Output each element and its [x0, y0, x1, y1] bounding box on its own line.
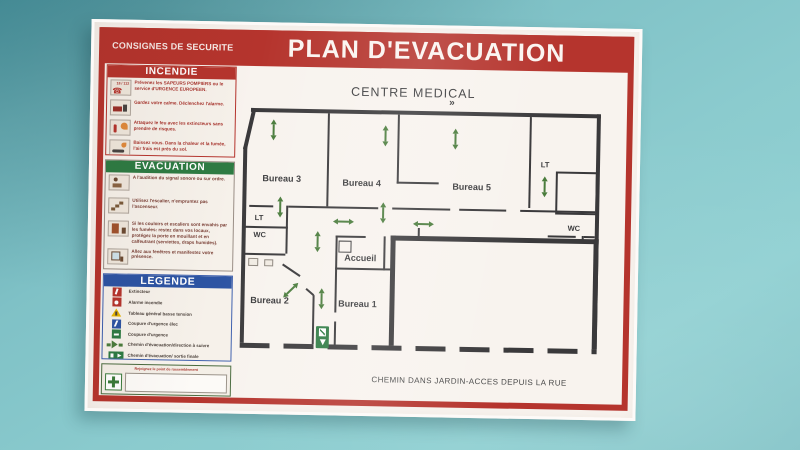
wall: [584, 236, 595, 238]
room-label-wc-right: WC: [568, 224, 581, 233]
plan-title-mark: »: [449, 98, 455, 109]
emergency-phone-icon: 18 / 112☎: [110, 79, 131, 95]
final-exit-sign-icon: [316, 326, 329, 348]
legende-label: Extincteur: [129, 289, 151, 295]
wall-door-tick: [418, 228, 420, 236]
evacuation-item: Si les couloirs et escaliers sont envahi…: [104, 218, 232, 248]
legende-label: Tableau général basse tension: [128, 310, 192, 317]
closet: [555, 172, 598, 216]
incendie-item: Gardez votre calme. Déclenchez l'alarme.: [107, 97, 235, 119]
blocked-corridor-icon: [108, 220, 129, 236]
evacuation-item: Allez aux fenêtres et manifestez votre p…: [104, 246, 232, 271]
room-label-lt-right: LT: [541, 160, 550, 169]
room-label-bureau5: Bureau 5: [452, 182, 491, 193]
evacuation-plan-poster: CONSIGNES DE SECURITE PLAN D'EVACUATION …: [84, 19, 642, 421]
incendie-item: Attaquez le feu avec les extincteurs san…: [106, 117, 234, 139]
room-label-wc-left: WC: [253, 230, 266, 239]
plan-title: CENTRE MEDICAL: [351, 85, 476, 101]
evacuation-text: Utilisez l'escalier, n'empruntez pas l'a…: [132, 198, 230, 212]
evac-arrow-left-icon: [338, 221, 349, 223]
fire-extinguisher-use-icon: [110, 119, 131, 135]
legende-label: Chemin d'évacuation/ sortie finale: [127, 353, 198, 360]
incendie-text: Baissez vous. Dans la chaleur et la fumé…: [133, 140, 231, 154]
fire-truck-icon: [110, 99, 131, 115]
stairs-icon: [108, 197, 129, 213]
evacuation-text: Si les couloirs et escaliers sont envahi…: [132, 221, 230, 246]
window-signal-icon: [107, 248, 128, 264]
evac-arrow-icon: [279, 201, 281, 212]
evac-arrow-icon: [382, 207, 384, 218]
instructions-sidebar: INCENDIE 18 / 112☎ Prévenez les SAPEURS …: [101, 64, 237, 396]
evac-arrow-left-icon: [418, 223, 429, 225]
assembly-point-icon: [105, 373, 122, 390]
emergency-numbers: 18 / 112: [116, 81, 129, 85]
wc-fixture: [248, 258, 258, 266]
crouch-under-smoke-icon: [109, 139, 130, 155]
room-label-lt-left: LT: [255, 213, 264, 222]
incendie-text: Gardez votre calme. Déclenchez l'alarme.: [134, 100, 224, 108]
down-arrow-icon: [319, 339, 325, 345]
incendie-panel: INCENDIE 18 / 112☎ Prévenez les SAPEURS …: [105, 64, 237, 157]
incendie-item: 18 / 112☎ Prévenez les SAPEURS POMPIERS …: [107, 77, 235, 99]
extinguisher-icon: [112, 287, 121, 296]
room-label-bureau4: Bureau 4: [342, 178, 381, 189]
incendie-text: Attaquez le feu avec les extincteurs san…: [134, 120, 232, 134]
evac-arrow-icon: [544, 181, 546, 192]
evac-arrow-icon: [454, 134, 456, 145]
final-exit-icon: [108, 351, 123, 359]
wall: [334, 321, 336, 344]
assembly-point-box: Rejoignez le point de rassemblement: [101, 363, 232, 396]
legende-label: Alarme incendie: [128, 300, 162, 306]
evac-arrow-icon: [273, 124, 275, 135]
room-label-bureau1: Bureau 1: [338, 299, 377, 310]
evac-arrow-icon: [384, 130, 386, 141]
incendie-item: Baissez vous. Dans la chaleur et la fumé…: [106, 137, 234, 157]
fire-alarm-icon: [112, 298, 121, 307]
evacuation-text: Allez aux fenêtres et manifestez votre p…: [131, 248, 229, 262]
low-voltage-board-icon: [111, 309, 121, 317]
power-cut-elec-icon: [111, 319, 120, 328]
power-cut-icon: [111, 330, 120, 339]
poster-title: PLAN D'EVACUATION: [262, 34, 633, 70]
evac-arrow-icon: [316, 236, 318, 247]
assembly-point-blank-field: [125, 372, 227, 393]
room-label-accueil: Accueil: [344, 253, 376, 264]
incendie-text: Prévenez les SAPEURS POMPIERS ou le serv…: [134, 80, 232, 94]
evacuation-text: A l'audition du signal sonore ou sur ord…: [133, 175, 225, 183]
evacuation-item: Utilisez l'escalier, n'empruntez pas l'a…: [105, 195, 233, 220]
legende-label: Coupure d'urgence élec: [128, 321, 178, 328]
evac-arrow-icon: [320, 293, 322, 304]
courtyard: [389, 236, 599, 350]
wc-fixture: [264, 259, 273, 266]
accueil-desk: [338, 241, 351, 253]
evacuation-item: A l'audition du signal sonore ou sur ord…: [105, 172, 233, 197]
evac-direction-icon: [107, 341, 125, 349]
evacuation-panel: EVACUATION A l'audition du signal sonore…: [103, 159, 235, 271]
legende-label: Chemin d'évacuation/direction à suivre: [128, 342, 210, 349]
legende-panel: LEGENDE Extincteur Alarme incendie Table…: [101, 273, 233, 361]
room-label-bureau3: Bureau 3: [262, 173, 301, 184]
alarm-listen-icon: [109, 174, 130, 190]
wall-corridor: [249, 205, 273, 207]
legende-item: Chemin d'évacuation/ sortie finale: [102, 350, 230, 362]
running-man-icon: [319, 328, 326, 336]
legende-label: Coupure d'urgence: [128, 332, 168, 338]
kicker-text: CONSIGNES DE SECURITE: [100, 40, 262, 53]
